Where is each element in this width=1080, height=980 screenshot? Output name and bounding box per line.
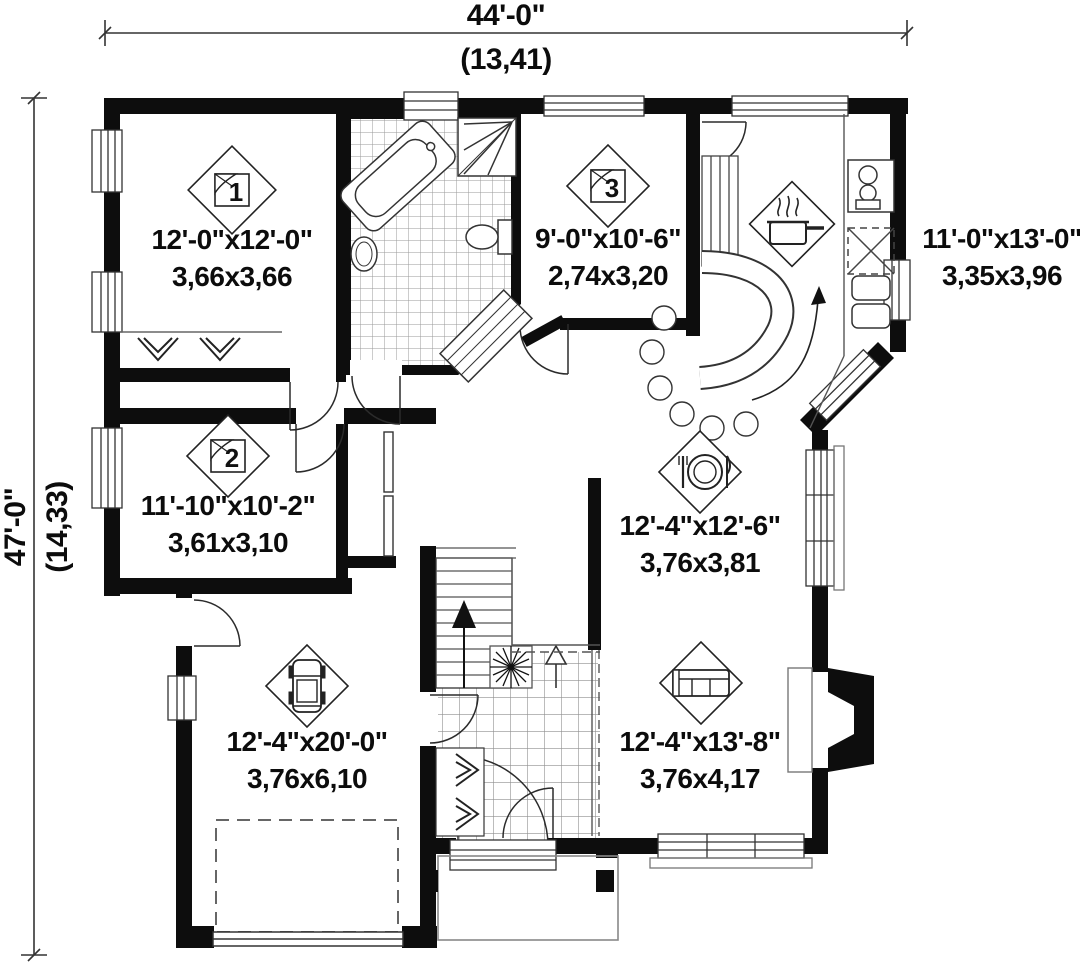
kitchen-size-metric: 3,35x3,96 (922, 257, 1080, 294)
garage-size-metric: 3,76x6,10 (226, 760, 387, 797)
label-bedroom-1: 12'-0"x12'-0" 3,66x3,66 (151, 221, 312, 295)
foyer-closet (436, 748, 484, 836)
fireplace (788, 668, 874, 772)
garage-side-door-gap (172, 598, 196, 646)
bedroom-1-size-imperial: 12'-0"x12'-0" (151, 221, 312, 258)
dining-size-imperial: 12'-4"x12'-6" (619, 507, 780, 544)
bedroom-3-size-metric: 2,74x3,20 (535, 257, 681, 294)
garage-house-door-gap (418, 692, 438, 746)
window-bedroom3-top (544, 96, 644, 116)
bedroom-2-size-imperial: 11'-10"x10'-2" (141, 487, 316, 524)
breakfast-bar (700, 262, 782, 378)
bedroom3-number: 3 (605, 173, 619, 203)
bathroom-sink (351, 237, 377, 271)
stove (848, 160, 894, 212)
garage-icon (266, 645, 348, 727)
dimension-height-feet: 47'-0" (0, 488, 32, 566)
bedroom-2-size-metric: 3,61x3,10 (141, 524, 316, 561)
stair-landing (490, 646, 532, 688)
refrigerator (848, 228, 894, 274)
window-dining-bay (806, 446, 844, 590)
label-kitchen: 11'-0"x13'-0" 3,35x3,96 (922, 220, 1080, 294)
bedroom2-number: 2 (225, 443, 239, 473)
dimension-width-meters: (13,41) (460, 44, 552, 76)
door-garage-side (194, 600, 240, 646)
garage-parking-outline (216, 820, 398, 932)
floor-plan-page: 1 2 3 (0, 0, 1080, 980)
landing-starburst (490, 646, 532, 688)
living-size-imperial: 12'-4"x13'-8" (619, 723, 780, 760)
foyer-tile-floor (532, 652, 598, 688)
pantry-cabinet (702, 156, 738, 266)
label-dining: 12'-4"x12'-6" 3,76x3,81 (619, 507, 780, 581)
label-garage: 12'-4"x20'-0" 3,76x6,10 (226, 723, 387, 797)
garage-door (213, 932, 403, 946)
sofa-icon (673, 670, 729, 696)
window-kitchen-top (732, 96, 848, 116)
car-icon (289, 660, 325, 712)
label-bedroom-2: 11'-10"x10'-2" 3,61x3,10 (141, 487, 316, 561)
label-living: 12'-4"x13'-8" 3,76x4,17 (619, 723, 780, 797)
living-icon (660, 642, 742, 724)
garage-elements (213, 820, 403, 946)
bedroom1-closet (120, 332, 282, 360)
dimension-height-meters: (14,33) (42, 481, 74, 573)
window-dining-diagonal (810, 350, 881, 421)
bedroom3-icon: 3 (567, 145, 649, 227)
window-bedroom2-left (92, 428, 122, 508)
entry-step (450, 840, 556, 870)
bedroom-1-size-metric: 3,66x3,66 (151, 258, 312, 295)
dining-icon (659, 431, 741, 513)
dimension-width-feet: 44'-0" (467, 0, 545, 32)
door-bedroom1 (290, 382, 338, 430)
kitchen-icon (750, 182, 835, 267)
window-bedroom1-left-upper (92, 130, 122, 192)
window-bathroom-top (404, 92, 458, 120)
shower (458, 118, 516, 176)
living-size-metric: 3,76x4,17 (619, 760, 780, 797)
kitchen-size-imperial: 11'-0"x13'-0" (922, 220, 1080, 257)
hall-closet (384, 432, 393, 556)
garage-size-imperial: 12'-4"x20'-0" (226, 723, 387, 760)
bedroom2-icon: 2 (187, 415, 269, 497)
label-bedroom-3: 9'-0"x10'-6" 2,74x3,20 (535, 220, 681, 294)
window-bedroom1-left-lower (92, 272, 122, 332)
dining-size-metric: 3,76x3,81 (619, 544, 780, 581)
bedroom1-number: 1 (229, 177, 243, 207)
bedroom-3-size-imperial: 9'-0"x10'-6" (535, 220, 681, 257)
window-living-bottom (650, 834, 812, 868)
window-garage-left (168, 676, 196, 720)
